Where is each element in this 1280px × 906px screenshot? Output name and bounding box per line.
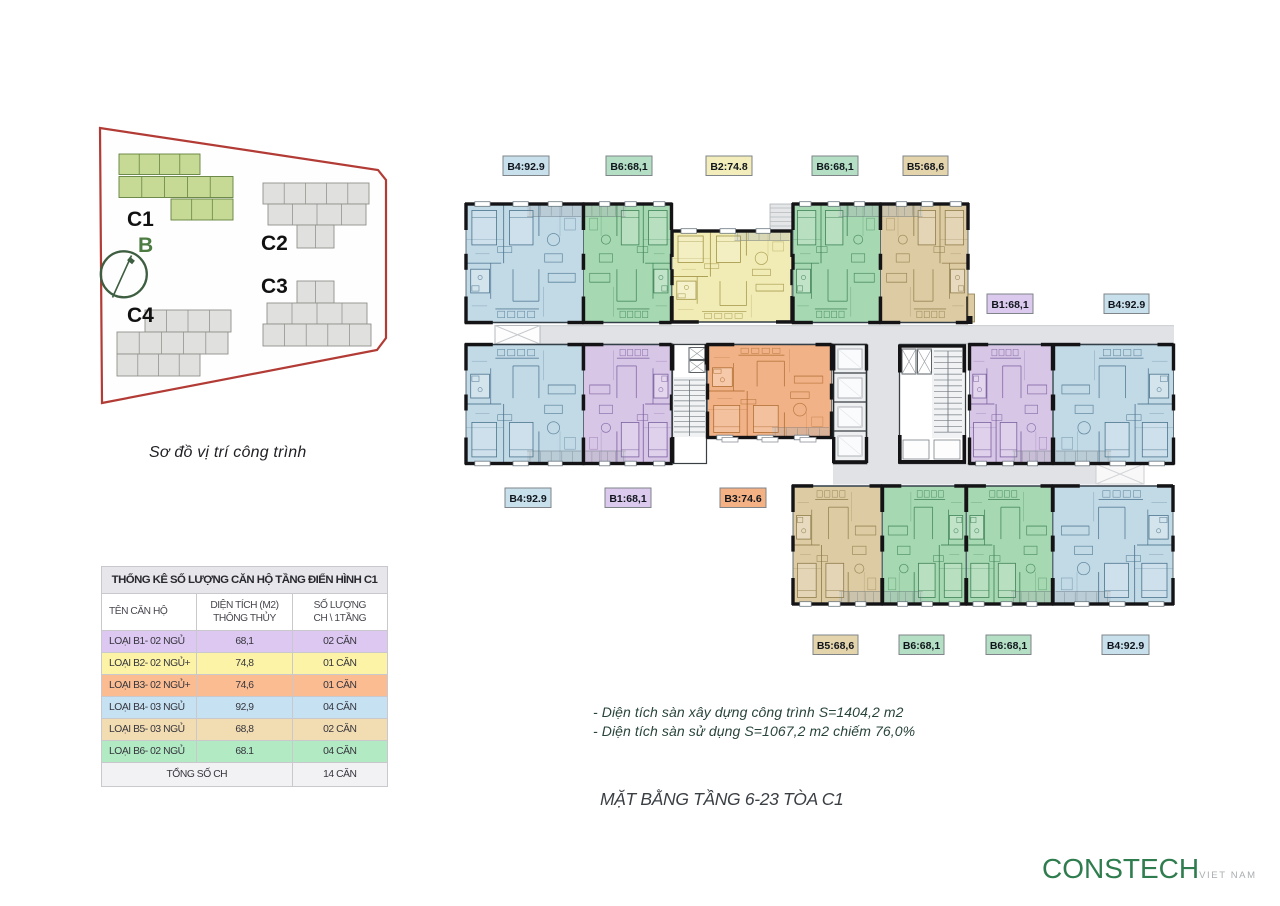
svg-text:B4:92.9: B4:92.9 (1107, 640, 1145, 652)
svg-text:B1:68,1: B1:68,1 (609, 493, 647, 505)
svg-text:C2: C2 (261, 232, 288, 255)
svg-text:B4:92.9: B4:92.9 (1108, 299, 1146, 311)
svg-text:B1:68,1: B1:68,1 (991, 299, 1029, 311)
svg-text:C1: C1 (127, 208, 154, 231)
svg-text:B6:68,1: B6:68,1 (903, 640, 941, 652)
svg-text:B: B (138, 234, 153, 257)
svg-text:C4: C4 (127, 304, 154, 327)
svg-text:B4:92.9: B4:92.9 (509, 493, 547, 505)
svg-text:B3:74.6: B3:74.6 (724, 493, 762, 505)
svg-text:B4:92.9: B4:92.9 (507, 161, 545, 173)
svg-text:B6:68,1: B6:68,1 (816, 161, 854, 173)
svg-text:C3: C3 (261, 275, 288, 298)
svg-text:B2:74.8: B2:74.8 (710, 161, 748, 173)
svg-text:B6:68,1: B6:68,1 (990, 640, 1028, 652)
svg-text:B5:68,6: B5:68,6 (817, 640, 855, 652)
svg-text:B6:68,1: B6:68,1 (610, 161, 648, 173)
svg-text:B5:68,6: B5:68,6 (907, 161, 945, 173)
